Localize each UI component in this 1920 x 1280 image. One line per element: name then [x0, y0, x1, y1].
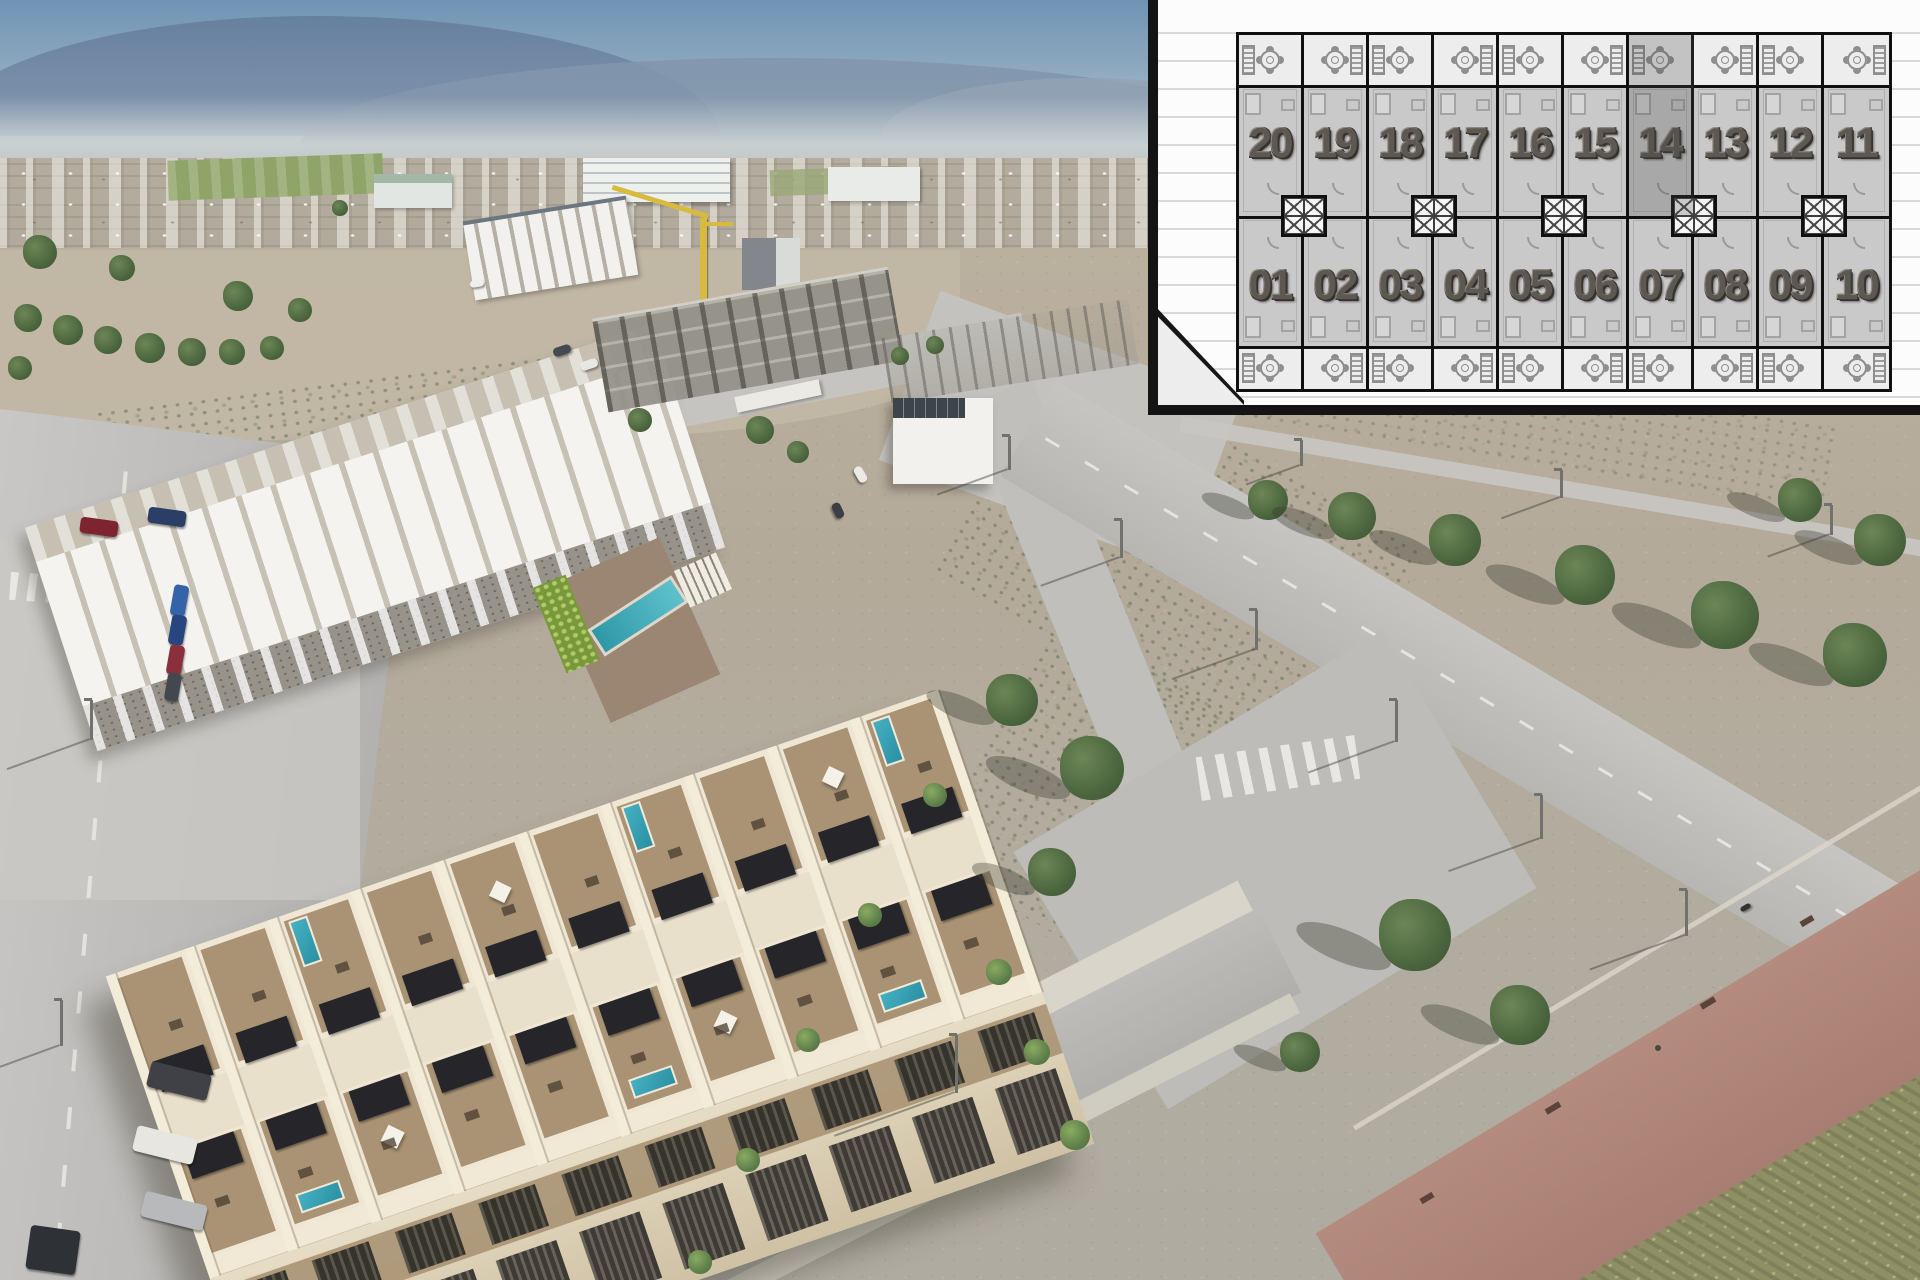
stairs-icon: [1480, 45, 1493, 75]
bath-icon: [1606, 99, 1620, 111]
row-divider: [1239, 346, 1889, 349]
bed-icon: [1245, 316, 1261, 338]
stairs-icon: [1610, 45, 1623, 75]
unit-number: 03: [1369, 264, 1431, 306]
stairs-icon: [1502, 45, 1515, 75]
white-building: [893, 398, 993, 484]
core-cell: [1414, 198, 1434, 216]
elevator-core: [1411, 195, 1457, 237]
table-icon: [1585, 358, 1605, 378]
unit-number: 18: [1369, 122, 1431, 164]
shaded-unit-overlay: [1629, 35, 1694, 216]
table-icon: [1325, 50, 1345, 70]
unit-number: 12: [1759, 122, 1821, 164]
table-icon: [1847, 50, 1867, 70]
unit-number: 17: [1434, 122, 1496, 164]
bath-icon: [1346, 320, 1360, 332]
unit-number: 01: [1239, 264, 1301, 306]
unit-number: 06: [1564, 264, 1626, 306]
unit-number: 20: [1239, 122, 1301, 164]
roof-terrace-cell: [1499, 35, 1561, 85]
stairs-icon: [1873, 45, 1886, 75]
bath-icon: [1541, 99, 1555, 111]
bed-icon: [1570, 93, 1586, 115]
table-icon: [1585, 50, 1605, 70]
stairs-icon: [1480, 353, 1493, 383]
roof-terrace-cell: [1694, 346, 1756, 389]
table-icon: [1780, 358, 1800, 378]
roof-terrace-cell: [1304, 346, 1366, 389]
bed-icon: [1570, 316, 1586, 338]
elevator-core: [1541, 195, 1587, 237]
warehouse-building: [374, 174, 452, 208]
core-cell: [1564, 198, 1584, 216]
bed-icon: [1765, 93, 1781, 115]
roof-terrace-cell: [1239, 346, 1301, 389]
unit-number: 02: [1304, 264, 1366, 306]
table-icon: [1325, 358, 1345, 378]
table-icon: [1780, 50, 1800, 70]
core-cell: [1694, 216, 1714, 234]
bath-icon: [1476, 99, 1490, 111]
bed-icon: [1375, 316, 1391, 338]
stairs-icon: [1740, 45, 1753, 75]
core-cell: [1304, 198, 1324, 216]
bath-icon: [1801, 320, 1815, 332]
unit-number: 11: [1824, 122, 1889, 164]
elevator-core: [1281, 195, 1327, 237]
unit-number: 07: [1629, 264, 1691, 306]
roof-terrace-cell: [1239, 35, 1301, 85]
construction-crane: [707, 222, 733, 226]
bath-icon: [1281, 320, 1295, 332]
table-icon: [1260, 358, 1280, 378]
bath-icon: [1411, 320, 1425, 332]
table-icon: [1715, 358, 1735, 378]
bath-icon: [1411, 99, 1425, 111]
table-icon: [1520, 358, 1540, 378]
stairs-icon: [1350, 353, 1363, 383]
unit-number: 16: [1499, 122, 1561, 164]
bath-icon: [1476, 320, 1490, 332]
core-cell: [1804, 198, 1824, 216]
core-cell: [1824, 198, 1844, 216]
elevator-core: [1801, 195, 1847, 237]
roof-terrace-cell: [1434, 35, 1496, 85]
roof-terrace-cell: [1824, 35, 1889, 85]
roof-terrace-cell: [1564, 35, 1626, 85]
core-cell: [1284, 198, 1304, 216]
bed-icon: [1635, 316, 1651, 338]
unit-number: 04: [1434, 264, 1496, 306]
roof-terrace-cell: [1564, 346, 1626, 389]
bath-icon: [1606, 320, 1620, 332]
core-cell: [1694, 198, 1714, 216]
roof-terrace-cell: [1759, 346, 1821, 389]
core-cell: [1674, 216, 1694, 234]
unit-number: 05: [1499, 264, 1561, 306]
bed-icon: [1440, 93, 1456, 115]
bath-icon: [1869, 99, 1883, 111]
stairs-icon: [1372, 353, 1385, 383]
bed-icon: [1830, 93, 1846, 115]
unit-number: 10: [1824, 264, 1889, 306]
bath-icon: [1736, 99, 1750, 111]
table-icon: [1260, 50, 1280, 70]
stairs-icon: [1762, 353, 1775, 383]
stairs-icon: [1242, 353, 1255, 383]
bath-icon: [1869, 320, 1883, 332]
table-icon: [1455, 358, 1475, 378]
core-cell: [1284, 216, 1304, 234]
roof-terrace-cell: [1369, 346, 1431, 389]
sports-field: [167, 153, 383, 200]
core-cell: [1824, 216, 1844, 234]
stairs-icon: [1610, 353, 1623, 383]
table-icon: [1520, 50, 1540, 70]
bath-icon: [1281, 99, 1295, 111]
roof-terrace-cell: [1304, 35, 1366, 85]
stairs-icon: [1740, 353, 1753, 383]
bed-icon: [1505, 93, 1521, 115]
office-building: [828, 167, 920, 201]
core-cell: [1434, 198, 1454, 216]
roof-terrace-cell: [1824, 346, 1889, 389]
floor-plan-grid: 2001190218031704160515061407130812091110: [1236, 32, 1892, 392]
bath-icon: [1346, 99, 1360, 111]
core-cell: [1544, 198, 1564, 216]
bath-icon: [1541, 320, 1555, 332]
unit-number: 08: [1694, 264, 1756, 306]
solar-panels: [893, 398, 965, 418]
stairs-icon: [1502, 353, 1515, 383]
bed-icon: [1310, 316, 1326, 338]
unit-number: 19: [1304, 122, 1366, 164]
unit-number: 09: [1759, 264, 1821, 306]
row-divider: [1239, 85, 1889, 88]
bath-icon: [1671, 320, 1685, 332]
bed-icon: [1310, 93, 1326, 115]
bath-icon: [1736, 320, 1750, 332]
stairs-icon: [1350, 45, 1363, 75]
site-plan-inset: 2001190218031704160515061407130812091110: [1148, 0, 1920, 415]
core-cell: [1434, 216, 1454, 234]
table-icon: [1390, 358, 1410, 378]
bed-icon: [1440, 316, 1456, 338]
bed-icon: [1765, 316, 1781, 338]
bed-icon: [1830, 316, 1846, 338]
bed-icon: [1245, 93, 1261, 115]
roof-terrace-cell: [1759, 35, 1821, 85]
stairs-icon: [1873, 353, 1886, 383]
bed-icon: [1700, 316, 1716, 338]
table-icon: [1390, 50, 1410, 70]
stairs-icon: [1242, 45, 1255, 75]
table-icon: [1650, 358, 1670, 378]
bed-icon: [1375, 93, 1391, 115]
stairs-icon: [1372, 45, 1385, 75]
roof-terrace-cell: [1629, 346, 1691, 389]
table-icon: [1715, 50, 1735, 70]
grey-building: [742, 238, 800, 290]
core-cell: [1304, 216, 1324, 234]
roof-terrace-cell: [1369, 35, 1431, 85]
bed-icon: [1505, 316, 1521, 338]
screenshot-root: 2001190218031704160515061407130812091110: [0, 0, 1920, 1280]
bed-icon: [1700, 93, 1716, 115]
construction-crane: [700, 218, 707, 310]
core-cell: [1544, 216, 1564, 234]
roof-terrace-cell: [1434, 346, 1496, 389]
core-cell: [1564, 216, 1584, 234]
roof-terrace-cell: [1694, 35, 1756, 85]
stairs-icon: [1632, 353, 1645, 383]
stairs-icon: [1762, 45, 1775, 75]
unit-number: 13: [1694, 122, 1756, 164]
roof-terrace-cell: [1499, 346, 1561, 389]
core-cell: [1804, 216, 1824, 234]
core-cell: [1414, 216, 1434, 234]
table-icon: [1455, 50, 1475, 70]
unit-number: 15: [1564, 122, 1626, 164]
table-icon: [1847, 358, 1867, 378]
office-building: [583, 158, 730, 202]
bath-icon: [1801, 99, 1815, 111]
